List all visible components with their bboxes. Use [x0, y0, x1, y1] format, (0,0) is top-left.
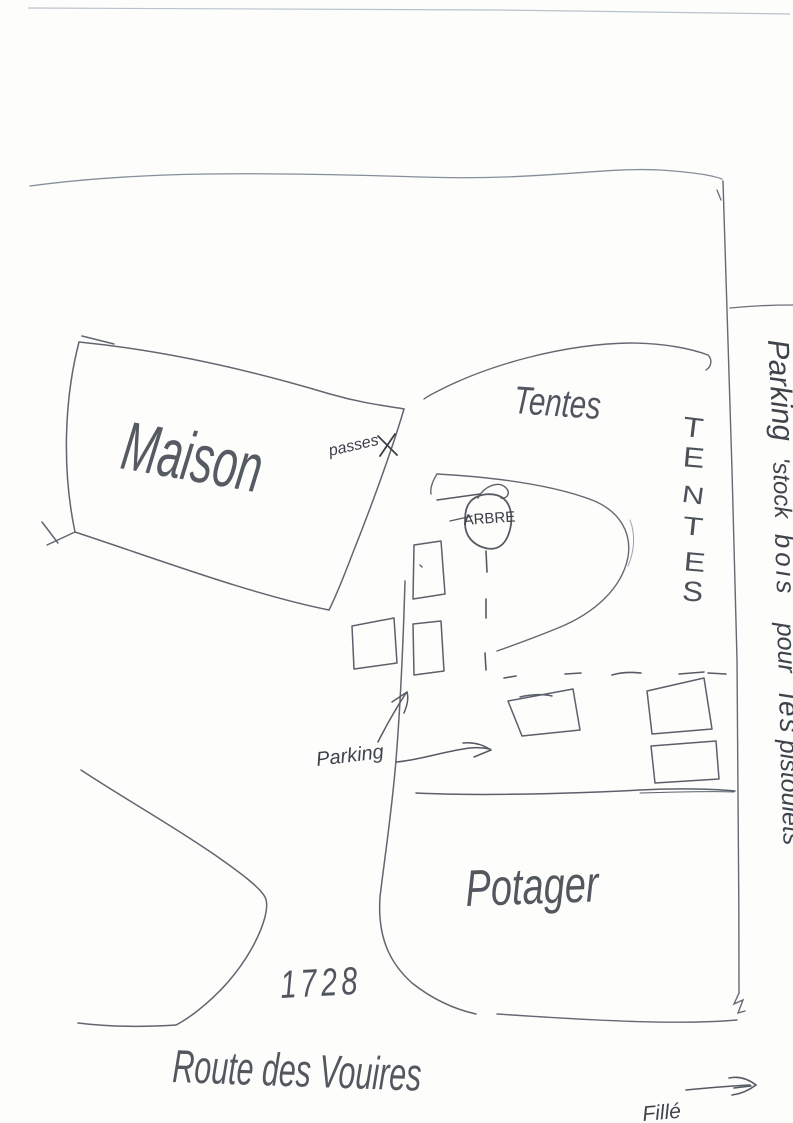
svg-text:Potager: Potager	[464, 855, 601, 918]
svg-text:pistoulets: pistoulets	[774, 738, 793, 846]
svg-text:'stock: 'stock	[767, 457, 793, 521]
svg-text:Route des Vouires: Route des Vouires	[172, 1041, 423, 1102]
svg-text:les: les	[773, 692, 793, 735]
svg-text:T: T	[681, 511, 704, 542]
svg-text:E: E	[683, 547, 707, 578]
svg-text:Tentes: Tentes	[512, 379, 602, 428]
svg-text:1728: 1728	[279, 960, 362, 1007]
svg-text:pour: pour	[771, 621, 793, 675]
svg-text:bois: bois	[769, 533, 793, 598]
svg-text:passes: passes	[326, 432, 380, 460]
svg-text:T: T	[681, 411, 705, 444]
svg-text:S: S	[681, 576, 704, 608]
svg-text:E: E	[682, 442, 706, 474]
svg-text:Parking: Parking	[761, 339, 793, 443]
svg-text:Parking: Parking	[315, 741, 385, 771]
svg-text:ARBRE: ARBRE	[463, 508, 516, 529]
svg-text:Maison: Maison	[116, 408, 268, 508]
svg-text:N: N	[680, 480, 706, 510]
svg-text:Fillé: Fillé	[641, 1100, 681, 1123]
